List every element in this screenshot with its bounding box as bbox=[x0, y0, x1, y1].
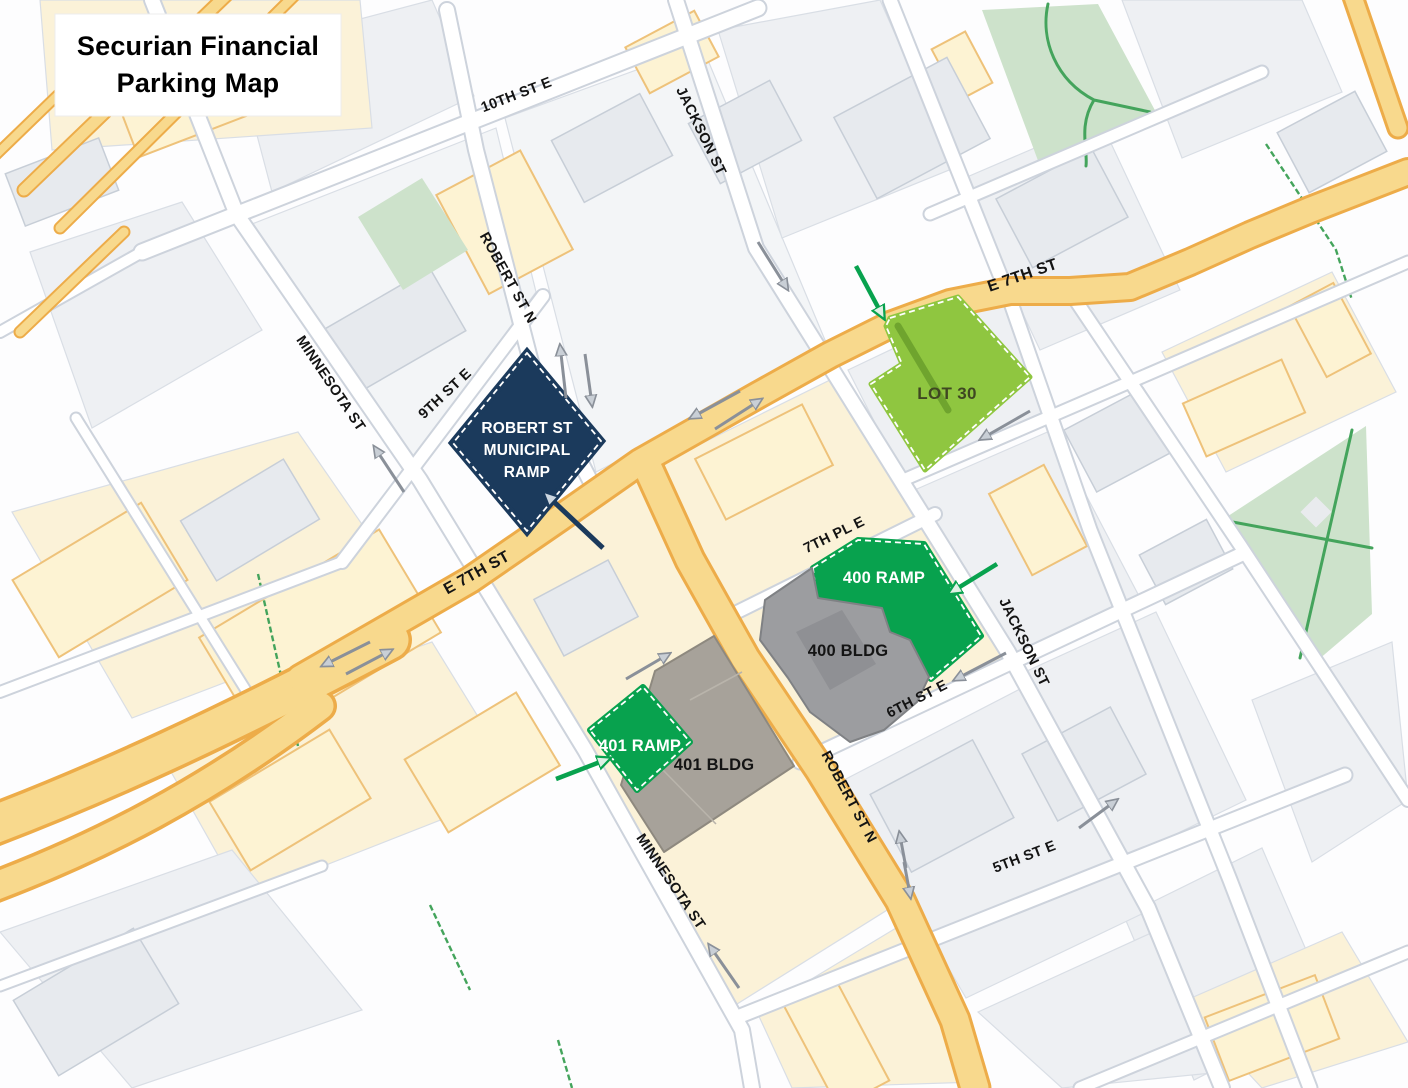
map-title: Securian Financial Parking Map bbox=[55, 14, 341, 116]
map-canvas: 10TH ST E JACKSON ST E 7TH ST ROBERT ST … bbox=[0, 0, 1408, 1088]
municipal-ramp-label: ROBERT ST bbox=[481, 420, 573, 437]
title-line-2: Parking Map bbox=[117, 68, 280, 98]
title-box bbox=[55, 14, 341, 116]
municipal-ramp-label: RAMP bbox=[504, 464, 550, 481]
ramp-400-label: 400 RAMP bbox=[843, 569, 925, 587]
bldg-400-label: 400 BLDG bbox=[808, 642, 888, 660]
ramp-401-label: 401 RAMP bbox=[599, 737, 681, 755]
municipal-ramp-label: MUNICIPAL bbox=[484, 442, 571, 459]
lot-30-label: LOT 30 bbox=[917, 384, 976, 403]
parking-map: 10TH ST E JACKSON ST E 7TH ST ROBERT ST … bbox=[0, 0, 1408, 1088]
title-line-1: Securian Financial bbox=[77, 31, 319, 61]
bldg-401-label: 401 BLDG bbox=[674, 756, 754, 774]
